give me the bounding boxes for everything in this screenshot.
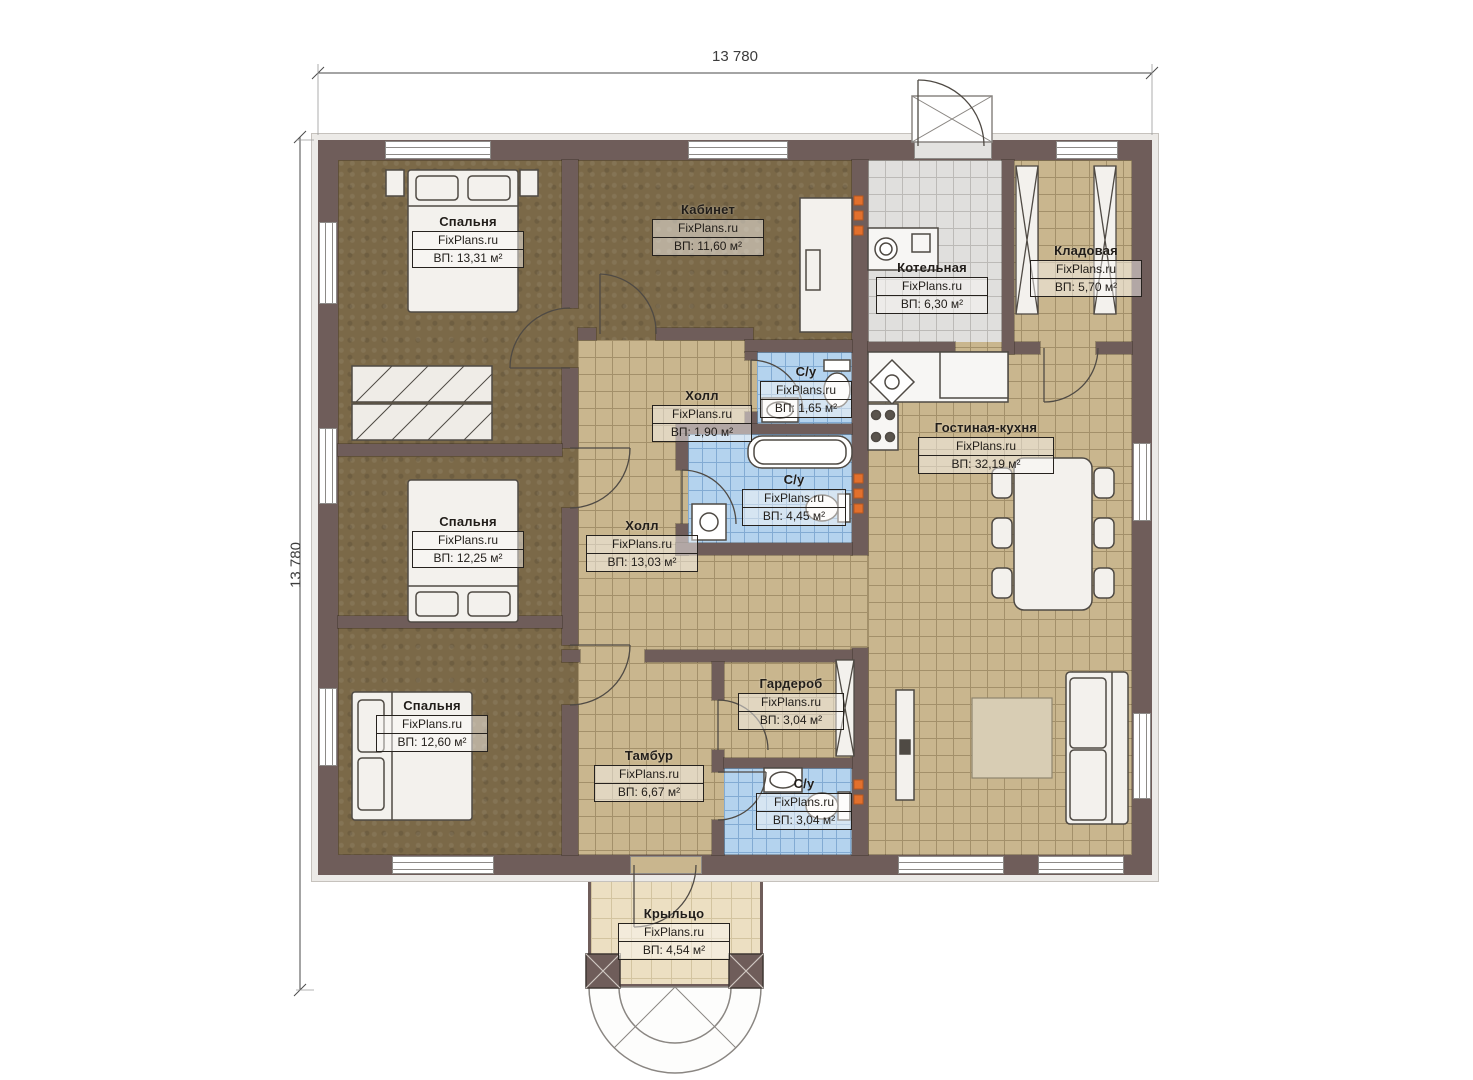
- dimension-width-label: 13 780: [318, 48, 1152, 65]
- wall-segment: [562, 160, 578, 308]
- wall-segment: [712, 820, 724, 855]
- room-label-boiler: Котельная FixPlans.ru ВП: 6,30 м²: [876, 260, 988, 314]
- room-name: С/у: [760, 364, 852, 379]
- window: [392, 856, 494, 874]
- room-label-living-kitchen: Гостиная-кухня FixPlans.ru ВП: 32,19 м²: [918, 420, 1054, 474]
- room-area: ВП: 32,19 м²: [919, 456, 1053, 473]
- watermark: FixPlans.ru: [919, 438, 1053, 456]
- room-area: ВП: 6,30 м²: [877, 296, 987, 313]
- wall-segment: [1096, 342, 1132, 354]
- wall-segment: [562, 508, 578, 645]
- room-label-vestibule: Тамбур FixPlans.ru ВП: 6,67 м²: [594, 748, 704, 802]
- watermark: FixPlans.ru: [587, 536, 697, 554]
- window: [1133, 713, 1151, 799]
- watermark: FixPlans.ru: [877, 278, 987, 296]
- window: [898, 856, 1004, 874]
- wall-segment: [724, 758, 852, 768]
- room-label-pantry: Кладовая FixPlans.ru ВП: 5,70 м²: [1030, 243, 1142, 297]
- watermark: FixPlans.ru: [413, 532, 523, 550]
- room-area: ВП: 12,60 м²: [377, 734, 487, 751]
- watermark: FixPlans.ru: [761, 382, 851, 400]
- watermark: FixPlans.ru: [1031, 261, 1141, 279]
- watermark: FixPlans.ru: [377, 716, 487, 734]
- wall-segment: [1002, 160, 1014, 354]
- watermark: FixPlans.ru: [413, 232, 523, 250]
- watermark: FixPlans.ru: [653, 220, 763, 238]
- room-name: Тамбур: [594, 748, 704, 763]
- room-name: Крыльцо: [618, 906, 730, 921]
- room-area: ВП: 5,70 м²: [1031, 279, 1141, 296]
- room-name: С/у: [756, 776, 852, 791]
- watermark: FixPlans.ru: [743, 490, 845, 508]
- wall-segment: [868, 342, 955, 354]
- watermark: FixPlans.ru: [619, 924, 729, 942]
- room-label-wardrobe: Гардероб FixPlans.ru ВП: 3,04 м²: [738, 676, 844, 730]
- room-label-hall-main: Холл FixPlans.ru ВП: 13,03 м²: [586, 518, 698, 572]
- room-name: Спальня: [412, 514, 524, 529]
- front-door-opening: [630, 856, 702, 874]
- room-name: Холл: [586, 518, 698, 533]
- room-area: ВП: 1,65 м²: [761, 400, 851, 417]
- room-name: Кабинет: [652, 202, 764, 217]
- wall-segment: [852, 648, 868, 855]
- wall-segment: [656, 328, 753, 340]
- room-area: ВП: 12,25 м²: [413, 550, 523, 567]
- room-area: ВП: 13,03 м²: [587, 554, 697, 571]
- window: [319, 428, 337, 504]
- window: [319, 688, 337, 766]
- window: [319, 222, 337, 304]
- wall-segment: [578, 328, 596, 340]
- window: [385, 141, 491, 159]
- room-name: Котельная: [876, 260, 988, 275]
- watermark: FixPlans.ru: [757, 794, 851, 812]
- room-area: ВП: 1,90 м²: [653, 424, 751, 441]
- room-label-bedroom1: Спальня FixPlans.ru ВП: 13,31 м²: [412, 214, 524, 268]
- room-name: Холл: [652, 388, 752, 403]
- window: [1038, 856, 1124, 874]
- dimension-height-label: 13 780: [288, 542, 305, 588]
- room-label-bathroom: С/у FixPlans.ru ВП: 4,45 м²: [742, 472, 846, 526]
- entry-door-opening: [914, 141, 992, 159]
- room-area: ВП: 3,04 м²: [757, 812, 851, 829]
- wall-segment: [562, 650, 580, 662]
- wall-segment: [712, 662, 724, 700]
- wall-segment: [712, 750, 724, 772]
- wall-segment: [745, 340, 852, 352]
- room-label-wc-bottom: С/у FixPlans.ru ВП: 3,04 м²: [756, 776, 852, 830]
- wall-segment: [338, 616, 562, 628]
- room-label-bedroom2: Спальня FixPlans.ru ВП: 12,25 м²: [412, 514, 524, 568]
- room-name: С/у: [742, 472, 846, 487]
- wall-segment: [852, 160, 868, 555]
- watermark: FixPlans.ru: [595, 766, 703, 784]
- window: [1133, 443, 1151, 521]
- room-label-wc-top: С/у FixPlans.ru ВП: 1,65 м²: [760, 364, 852, 418]
- room-name: Спальня: [376, 698, 488, 713]
- room-area: ВП: 13,31 м²: [413, 250, 523, 267]
- watermark: FixPlans.ru: [653, 406, 751, 424]
- wall-segment: [562, 368, 578, 448]
- room-area: ВП: 4,54 м²: [619, 942, 729, 959]
- room-label-porch: Крыльцо FixPlans.ru ВП: 4,54 м²: [618, 906, 730, 960]
- floor-plan-canvas: Спальня FixPlans.ru ВП: 13,31 м² Спальня…: [0, 0, 1473, 1080]
- wall-segment: [338, 444, 562, 456]
- entry-door-arc: [918, 80, 984, 146]
- room-area: ВП: 4,45 м²: [743, 508, 845, 525]
- room-area: ВП: 3,04 м²: [739, 712, 843, 729]
- watermark: FixPlans.ru: [739, 694, 843, 712]
- entry-stoop: [912, 96, 992, 142]
- porch-steps: [589, 987, 761, 1073]
- window: [1056, 141, 1118, 159]
- room-area: ВП: 6,67 м²: [595, 784, 703, 801]
- dimension-line-top: [312, 64, 1158, 135]
- wall-segment: [745, 352, 757, 360]
- room-label-bedroom3: Спальня FixPlans.ru ВП: 12,60 м²: [376, 698, 488, 752]
- room-name: Гардероб: [738, 676, 844, 691]
- room-name: Кладовая: [1030, 243, 1142, 258]
- wall-segment: [676, 543, 852, 555]
- room-label-office: Кабинет FixPlans.ru ВП: 11,60 м²: [652, 202, 764, 256]
- room-name: Гостиная-кухня: [918, 420, 1054, 435]
- room-label-hall-small: Холл FixPlans.ru ВП: 1,90 м²: [652, 388, 752, 442]
- wall-segment: [562, 705, 578, 855]
- window: [688, 141, 788, 159]
- room-area: ВП: 11,60 м²: [653, 238, 763, 255]
- room-name: Спальня: [412, 214, 524, 229]
- wall-segment: [645, 650, 852, 662]
